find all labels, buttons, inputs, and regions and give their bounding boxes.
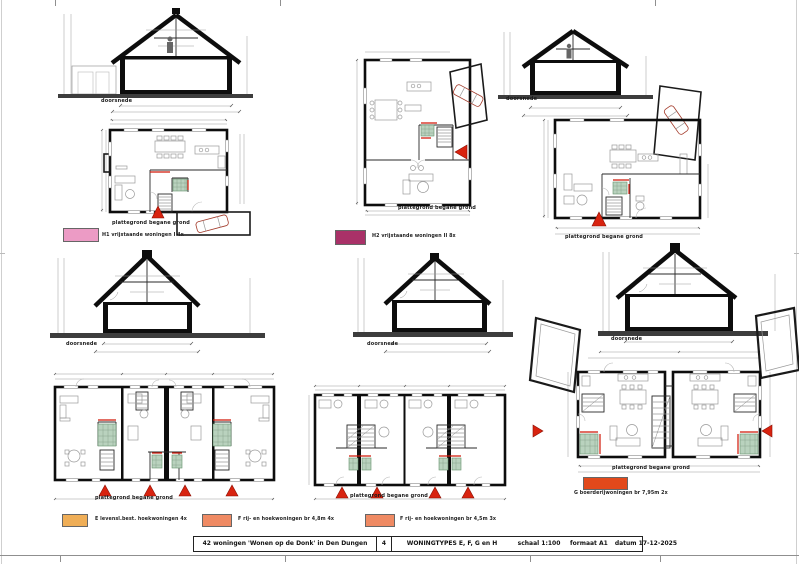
titleblock-project: 42 woningen 'Wonen op de Donk' in Den Du… [194, 537, 376, 551]
fold-mark [280, 0, 281, 6]
fold-mark [60, 556, 61, 562]
caption-doorsnede: doorsnede [506, 97, 537, 103]
caption-doorsnede: doorsnede [367, 342, 398, 348]
legend-label-e: E levensl.best. hoekwoningen 4x [95, 517, 187, 522]
entrance-marker [226, 485, 238, 496]
fold-mark [530, 556, 531, 562]
caption-plattegrond: plattegrond begane grond [112, 221, 190, 227]
entrance-marker [462, 487, 474, 498]
entrance-marker [336, 487, 348, 498]
title-block: 42 woningen 'Wonen op de Donk' in Den Du… [193, 536, 643, 552]
plan-g-drawing [528, 306, 799, 502]
legend-swatch-g [583, 477, 628, 490]
legend-swatch-f48 [202, 514, 232, 527]
entrance-marker [179, 485, 191, 496]
entrance-marker [429, 487, 441, 498]
entrance-marker [455, 145, 467, 159]
legend-label-g: G boerderijwoningen br 7,95m 2x [574, 491, 668, 496]
sheet-edge-left [1, 0, 2, 564]
legend-label-f45: F rij- en hoekwoningen br 4,5m 3x [400, 517, 496, 522]
legend-swatch-h2 [335, 230, 366, 245]
fold-mark [794, 253, 799, 254]
titleblock-format-date: formaat A1 datum 17-12-2025 [566, 537, 679, 551]
legend-swatch-e [62, 514, 88, 527]
titleblock-format: formaat A1 [570, 541, 608, 547]
legend-label-f48: F rij- en hoekwoningen br 4,8m 4x [238, 517, 334, 522]
legend-label-h2: H2 vrijstaande woningen II 8x [372, 234, 456, 239]
legend-label-h1: H1 vrijstaande woningen I 4x [102, 233, 184, 238]
caption-plattegrond: plattegrond begane grond [350, 494, 428, 500]
legend-swatch-f45 [365, 514, 395, 527]
caption-doorsnede: doorsnede [66, 342, 97, 348]
plan-rowhouses-mid-drawing [306, 380, 511, 502]
fold-mark [660, 556, 661, 562]
titleblock-scale: schaal 1:100 [512, 537, 566, 551]
legend-swatch-h1 [63, 228, 99, 242]
entrance-marker [533, 425, 543, 437]
sheet-bottom-rule [0, 555, 799, 556]
titleblock-date: datum 17-12-2025 [615, 541, 677, 547]
fold-mark [655, 0, 656, 6]
fold-mark [55, 0, 56, 6]
caption-plattegrond: plattegrond begane grond [612, 466, 690, 472]
entrance-marker [762, 425, 772, 437]
section-h1-drawing [58, 6, 253, 118]
plan-h2-drawing [355, 48, 495, 218]
caption-doorsnede: doorsnede [101, 99, 132, 105]
caption-plattegrond: plattegrond begane grond [95, 496, 173, 502]
fold-mark [285, 556, 286, 562]
titleblock-sheet-number: 4 [376, 537, 392, 551]
plan-rowhouses-left-drawing [52, 366, 277, 502]
drawing-sheet: doorsnede [0, 0, 799, 564]
plan-h3-drawing [540, 84, 755, 254]
caption-plattegrond: plattegrond begane grond [398, 206, 476, 212]
fold-mark [0, 253, 5, 254]
titleblock-sheet-title: WONINGTYPES E, F, G en H [392, 537, 512, 551]
